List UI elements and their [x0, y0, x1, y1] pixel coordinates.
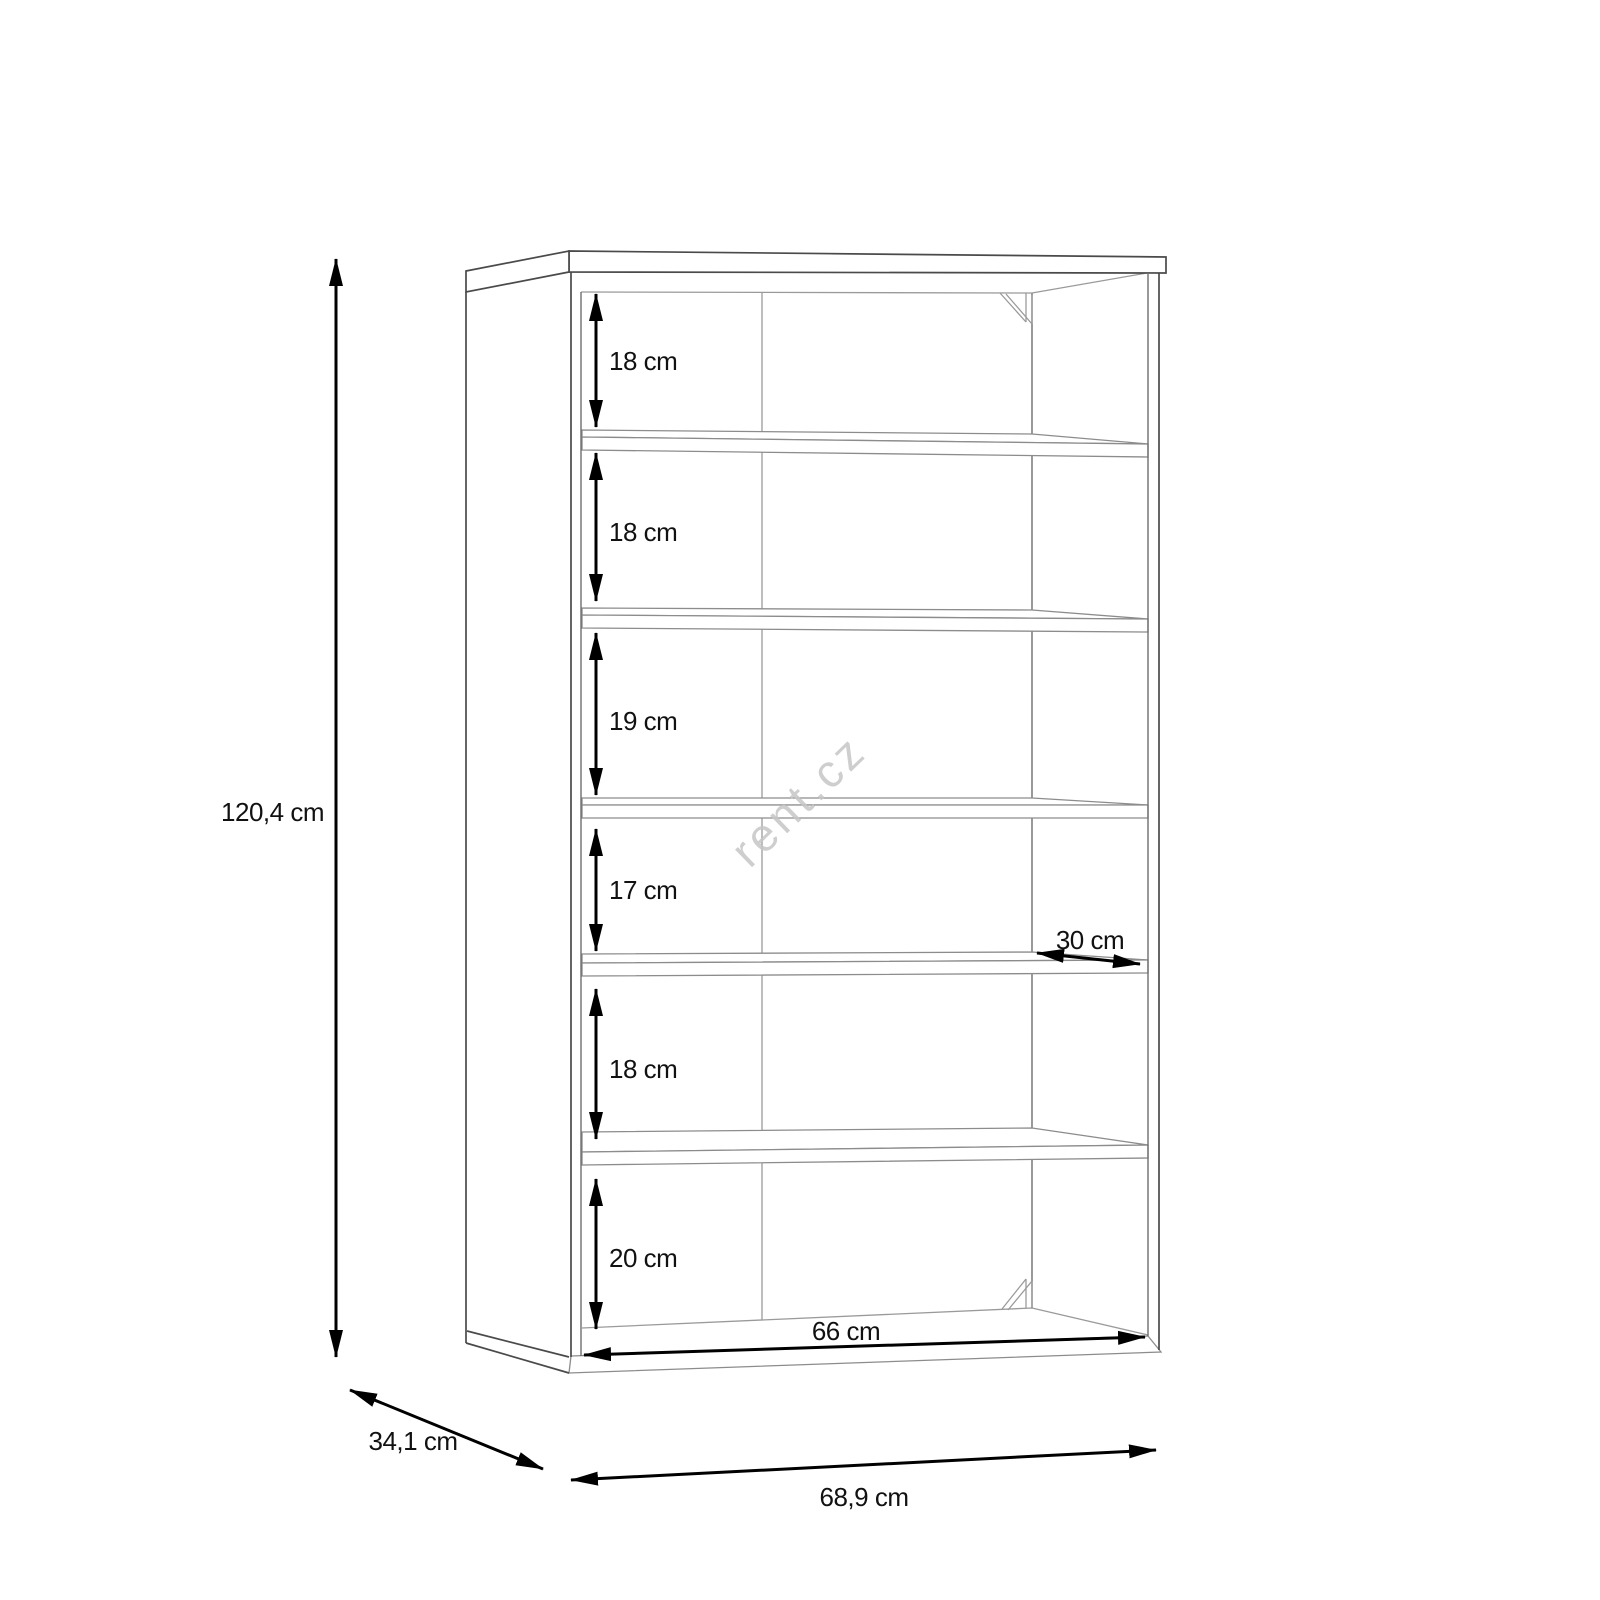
corner-brace-bottom	[1002, 1279, 1032, 1310]
compartment-dimension-6: 20 cm	[596, 1179, 677, 1329]
compartment-dimension-3: 19 cm	[596, 633, 677, 795]
top-left-end-face	[466, 251, 569, 292]
shelf-front-face	[582, 805, 1148, 818]
overall-depth-dimension: 34,1 cm	[350, 1390, 543, 1469]
overall-width-arrow	[571, 1450, 1156, 1480]
overall-depth-label: 34,1 cm	[369, 1426, 458, 1456]
overall-width-dimension: 68,9 cm	[571, 1450, 1156, 1512]
compartment-height-label-2: 18 cm	[609, 517, 677, 547]
top-interior-edge	[581, 273, 1147, 293]
top-front-face	[569, 251, 1166, 273]
diagram-canvas: 120,4 cm 18 cm 18 cm 19 cm 17 cm 18 cm 2…	[0, 0, 1600, 1600]
compartment-dimension-1: 18 cm	[596, 294, 677, 427]
shelf-top-face	[582, 798, 1148, 805]
corner-brace-top	[1000, 293, 1032, 324]
compartment-height-label-1: 18 cm	[609, 346, 677, 376]
compartment-height-label-5: 18 cm	[609, 1054, 677, 1084]
shelf-2	[582, 608, 1148, 632]
inner-width-label: 66 cm	[812, 1316, 880, 1346]
right-side-panel	[1148, 273, 1159, 1350]
compartment-height-label-6: 20 cm	[609, 1243, 677, 1273]
overall-height-dimension: 120,4 cm	[221, 259, 336, 1357]
bottom-left-edge-upper	[467, 1331, 569, 1357]
compartment-dimension-2: 18 cm	[596, 453, 677, 601]
furniture-dimension-diagram: 120,4 cm 18 cm 18 cm 19 cm 17 cm 18 cm 2…	[0, 0, 1600, 1600]
compartment-height-label-4: 17 cm	[609, 875, 677, 905]
compartment-dimension-4: 17 cm	[596, 829, 677, 951]
shelf-front-face	[582, 960, 1148, 976]
overall-height-label: 120,4 cm	[221, 797, 324, 827]
overall-width-label: 68,9 cm	[820, 1482, 909, 1512]
shelf-1	[582, 430, 1148, 457]
compartment-height-label-3: 19 cm	[609, 706, 677, 736]
shelf-3	[582, 798, 1148, 818]
compartment-dimension-5: 18 cm	[596, 989, 677, 1139]
shelf-5	[582, 1128, 1148, 1165]
bottom-left-edge-lower	[466, 1343, 569, 1373]
shelf-depth-label: 30 cm	[1056, 925, 1124, 955]
left-side-panel	[466, 272, 581, 1357]
